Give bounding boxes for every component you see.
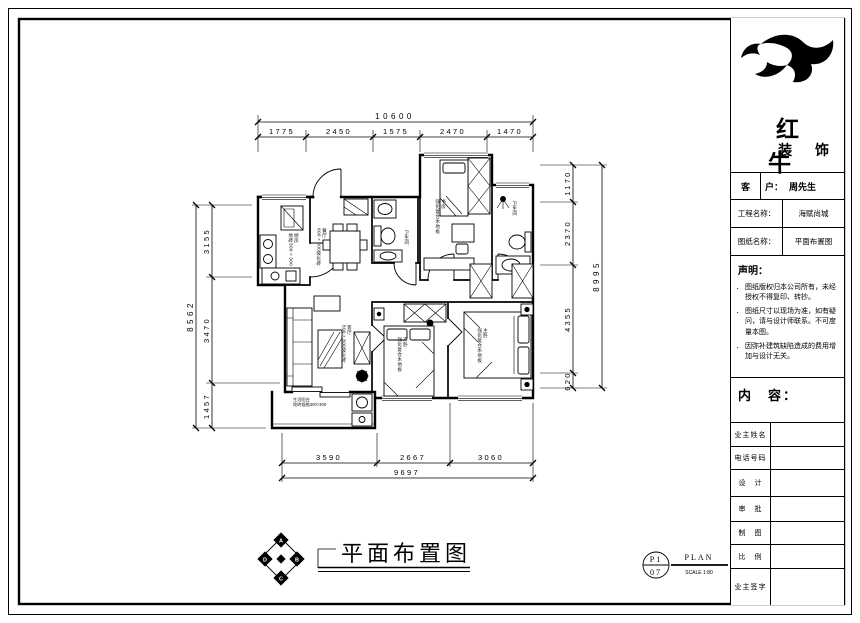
client-value: 周先生 — [789, 180, 816, 193]
compass-south: C — [279, 577, 283, 583]
title-block: 红 牛 装 饰 客 户： 周先生 工程名称： 海赋尚城 图纸名称： 平面布置图 … — [730, 18, 844, 605]
desk — [452, 224, 474, 242]
room-label-bath2: 卫生间 — [512, 201, 518, 216]
stamp-number: P1 — [650, 555, 662, 564]
dim-left-overall: 8562 — [186, 300, 195, 332]
bull-logo-icon — [731, 18, 845, 110]
statement-item: 图纸版权归本公司所有，未经授权不得复印、转抄。 — [738, 283, 839, 303]
stamp-name: PLAN — [685, 553, 714, 562]
stamp-total: 07 — [650, 568, 662, 577]
content-section: 内 容： — [731, 377, 844, 422]
dim-right: 1170 2370 4355 620 8995 — [540, 162, 607, 391]
phone-row: 电话号码 — [731, 446, 844, 469]
owner-name-row: 业主姓名 — [731, 423, 844, 446]
project-value: 海赋尚城 — [799, 208, 829, 219]
drawing-sheet: 10600 1775 2450 1575 2470 1470 3590 2667… — [0, 0, 860, 623]
sheet-stamp: P1 07 PLAN SCALE 1:80 — [643, 552, 728, 578]
compass-east: B — [295, 558, 299, 564]
dim-right-3: 4355 — [563, 306, 572, 332]
statement-section: 声明： 图纸版权归本公司所有，未经授权不得复印、转抄。 图纸尺寸以现场为准，如有… — [731, 255, 844, 377]
statement-item: 图纸尺寸以现场为准，如有疑问，请与设计师联系。不可度量本图。 — [738, 307, 839, 337]
living-furniture — [287, 296, 370, 386]
lamp — [427, 320, 433, 326]
dim-top-overall: 10600 — [375, 112, 415, 121]
dim-top-3: 1575 — [383, 127, 409, 136]
dim-bottom-2: 2667 — [400, 453, 426, 462]
master-furniture — [464, 304, 533, 390]
dim-right-1: 1170 — [563, 170, 572, 195]
brand-suffix: 装 饰 — [778, 140, 838, 160]
draftsman-row: 制 图 — [731, 521, 844, 544]
shoe-cabinet — [344, 199, 368, 215]
room-label-living: 客厅 800×800玻化砖 — [341, 325, 352, 363]
study-furniture — [424, 158, 490, 270]
caption: 平面布置图 — [318, 541, 471, 572]
dim-right-4: 620 — [563, 371, 572, 390]
dim-right-overall: 8995 — [592, 260, 601, 292]
dim-bottom-1: 3590 — [316, 453, 342, 462]
approval-row: 审 批 — [731, 496, 844, 521]
designer-row: 设 计 — [731, 469, 844, 496]
dim-left-2: 3470 — [202, 317, 211, 343]
washing-machine — [352, 394, 372, 426]
compass-west: D — [263, 558, 267, 564]
dim-right-2: 2370 — [563, 220, 572, 246]
room-label-kitchen: 厨房 地砖300×300 — [288, 233, 299, 266]
compass: A B C D — [258, 533, 304, 585]
dim-top-2: 2450 — [326, 127, 352, 136]
project-label: 工程名称： — [731, 200, 783, 227]
statement-title: 声明： — [738, 262, 839, 277]
dim-top-5: 1470 — [497, 127, 523, 136]
statement-item: 因弥补建筑缺陷造成的费用增加与设计无关。 — [738, 342, 839, 362]
scale-row: 比 例 — [731, 544, 844, 568]
signature-table: 业主姓名 电话号码 设 计 审 批 制 图 比 例 — [731, 422, 844, 605]
entry-door — [313, 169, 341, 197]
room-label-bath1: 卫生间 — [404, 230, 410, 245]
caption-title: 平面布置图 — [341, 541, 471, 566]
client-field: 户： — [765, 180, 783, 193]
compass-north: A — [279, 539, 283, 545]
dim-bottom-3: 3060 — [478, 453, 504, 462]
dim-top-4: 2470 — [440, 127, 466, 136]
sheet-name-label: 图纸名称： — [731, 228, 783, 255]
dim-top-1: 1775 — [269, 127, 295, 136]
master-door — [448, 318, 462, 346]
dim-left-1: 3155 — [202, 228, 211, 254]
balcony-slider — [292, 387, 322, 392]
dim-top: 10600 1775 2450 1575 2470 1470 — [255, 112, 536, 152]
dining-table — [323, 224, 367, 270]
content-label: 内 容： — [738, 388, 798, 403]
desk-chair — [456, 244, 468, 254]
room-label-bed2: 次卧 强化复合木地板 — [397, 337, 408, 372]
room-label-balcony: 生活阳台 地砖规格300×300 — [293, 397, 326, 408]
dim-bottom-overall: 9697 — [394, 468, 420, 477]
sheet-name-value: 平面布置图 — [795, 236, 833, 247]
bed2-furniture — [374, 304, 446, 396]
dim-bottom: 3590 2667 3060 9697 — [279, 403, 536, 482]
room-label-study: 书房 强化复合木地板 — [435, 199, 446, 234]
brand-logo-area: 红 牛 装 饰 — [731, 18, 844, 172]
project-row: 工程名称： 海赋尚城 — [731, 199, 844, 227]
bath1-fixtures — [374, 200, 402, 262]
stamp-scale: SCALE 1:80 — [685, 570, 713, 576]
sheet-name-row: 图纸名称： 平面布置图 — [731, 227, 844, 255]
dim-left-3: 1457 — [202, 393, 211, 419]
room-label-dining: 餐厅 800×800玻化砖 — [316, 228, 327, 266]
bath1-door — [394, 263, 416, 285]
owner-signature-row: 业主签字 — [731, 568, 844, 605]
room-label-master: 主卧 强化复合木地板 — [477, 328, 488, 363]
